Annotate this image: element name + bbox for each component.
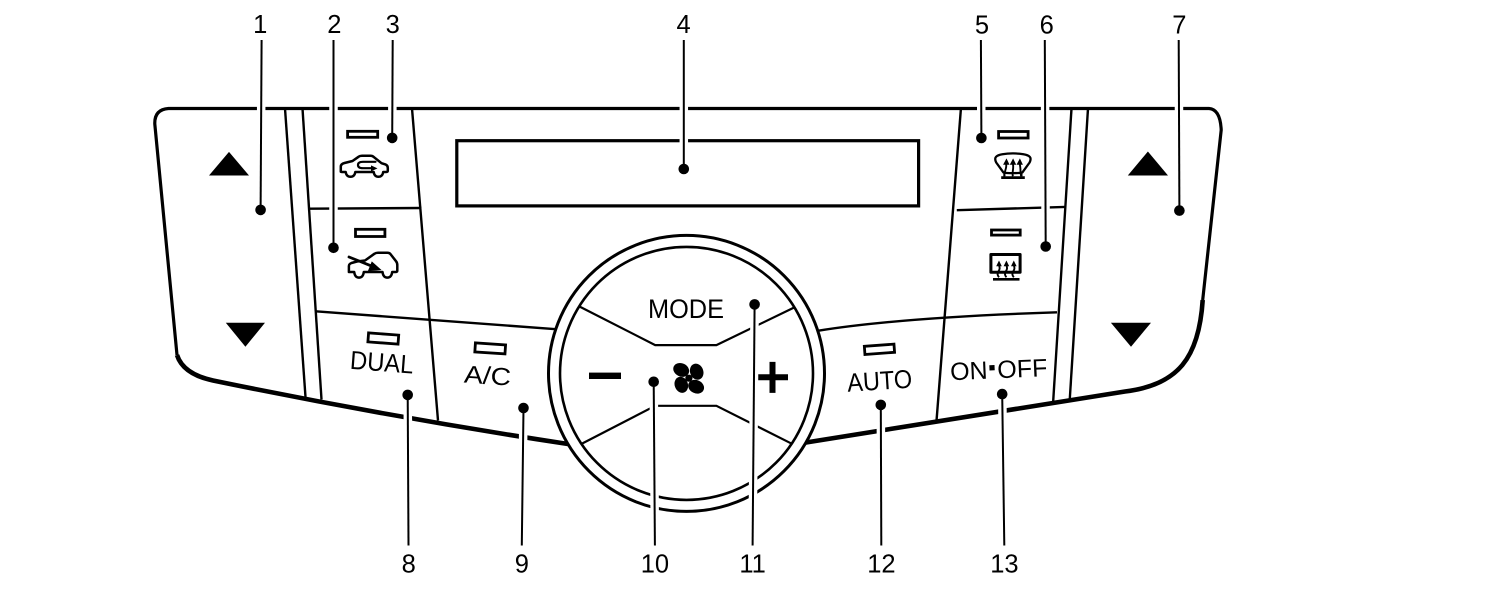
- svg-text:6: 6: [1040, 11, 1054, 39]
- svg-text:4: 4: [677, 11, 691, 39]
- svg-text:1: 1: [253, 11, 267, 39]
- svg-text:A/C: A/C: [463, 362, 512, 392]
- svg-text:10: 10: [641, 550, 669, 578]
- svg-text:AUTO: AUTO: [846, 364, 913, 398]
- svg-text:ON: ON: [950, 357, 989, 387]
- svg-text:13: 13: [990, 550, 1018, 578]
- svg-text:DUAL: DUAL: [349, 345, 415, 380]
- svg-text:MODE: MODE: [648, 293, 724, 324]
- svg-text:OFF: OFF: [997, 354, 1048, 384]
- svg-text:3: 3: [386, 11, 400, 39]
- svg-text:7: 7: [1172, 11, 1186, 39]
- svg-text:12: 12: [867, 550, 895, 578]
- svg-text:8: 8: [402, 550, 416, 578]
- svg-text:9: 9: [515, 550, 529, 578]
- svg-text:5: 5: [975, 11, 989, 39]
- svg-text:11: 11: [739, 550, 765, 578]
- svg-text:2: 2: [327, 11, 341, 39]
